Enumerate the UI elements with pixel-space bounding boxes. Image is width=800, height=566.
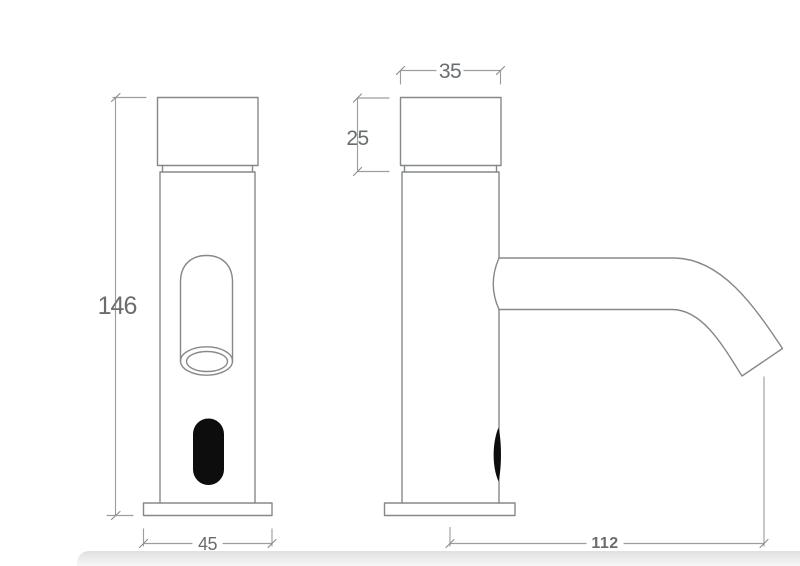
faucet-technical-drawing-page: 146 45 35 25 112	[0, 0, 800, 566]
dimension-side-top-height: 25	[346, 94, 389, 176]
dimension-label-side-top-width: 35	[439, 60, 461, 83]
front-cap-outline	[158, 98, 259, 166]
front-base-plate	[144, 503, 273, 516]
dimension-side-top-width: 35	[397, 60, 505, 84]
front-neck-lines	[163, 166, 253, 173]
technical-drawing: 146 45 35 25 112	[0, 0, 800, 566]
side-base-plate	[385, 503, 516, 516]
side-cap-outline	[401, 98, 502, 166]
side-sensor-window	[494, 428, 501, 482]
dimension-label-side-top-height: 25	[346, 127, 368, 150]
dimension-front-height: 146	[98, 94, 146, 520]
bottom-page-band	[77, 551, 800, 566]
front-spout-capsule	[181, 256, 233, 362]
side-neck-lines	[405, 166, 497, 173]
front-sensor-window	[193, 419, 224, 486]
front-view	[144, 98, 273, 516]
side-spout-back-arc	[493, 258, 499, 310]
side-view	[385, 98, 783, 516]
dimension-label-side-base-reach: 112	[591, 535, 618, 552]
side-body-outline	[402, 172, 499, 503]
front-spout-rim-inner	[187, 352, 228, 372]
side-spout-outline	[499, 258, 783, 376]
dimension-label-front-height: 146	[98, 292, 137, 320]
